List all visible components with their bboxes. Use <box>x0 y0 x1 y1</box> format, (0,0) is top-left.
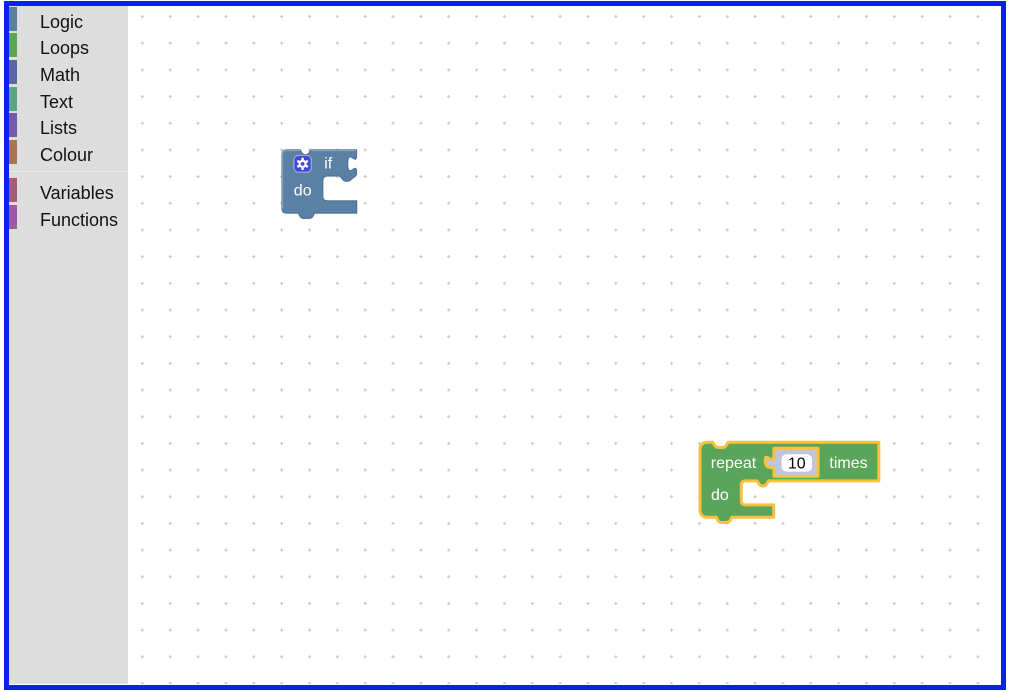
svg-text:if: if <box>324 155 333 172</box>
svg-text:10: 10 <box>788 456 806 473</box>
svg-text:do: do <box>711 487 729 504</box>
svg-text:do: do <box>294 182 312 199</box>
svg-text:repeat: repeat <box>711 455 757 472</box>
svg-text:times: times <box>829 455 867 472</box>
